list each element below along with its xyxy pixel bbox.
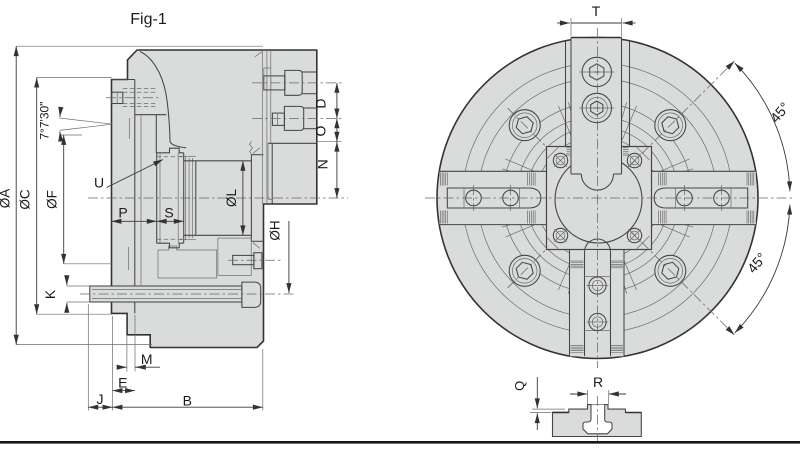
svg-text:O: O bbox=[313, 125, 329, 136]
svg-text:J: J bbox=[97, 391, 104, 407]
svg-text:S: S bbox=[164, 205, 173, 221]
svg-text:P: P bbox=[118, 205, 127, 221]
svg-text:R: R bbox=[593, 374, 603, 390]
svg-text:Q: Q bbox=[512, 381, 527, 391]
svg-text:B: B bbox=[183, 393, 192, 409]
svg-text:U: U bbox=[94, 175, 104, 191]
svg-text:7°7'30": 7°7'30" bbox=[38, 102, 52, 140]
svg-text:M: M bbox=[141, 351, 153, 367]
svg-text:Fig-1: Fig-1 bbox=[130, 11, 167, 28]
svg-text:D: D bbox=[313, 99, 329, 109]
svg-text:T: T bbox=[592, 3, 601, 19]
svg-text:K: K bbox=[42, 289, 58, 299]
svg-text:ØC: ØC bbox=[18, 189, 33, 210]
svg-text:E: E bbox=[118, 375, 127, 391]
svg-text:ØF: ØF bbox=[45, 190, 60, 209]
svg-text:ØL: ØL bbox=[224, 189, 239, 208]
svg-text:ØH: ØH bbox=[268, 220, 283, 240]
svg-text:45°: 45° bbox=[767, 99, 793, 126]
svg-text:ØA: ØA bbox=[0, 189, 13, 209]
svg-text:N: N bbox=[314, 159, 330, 169]
